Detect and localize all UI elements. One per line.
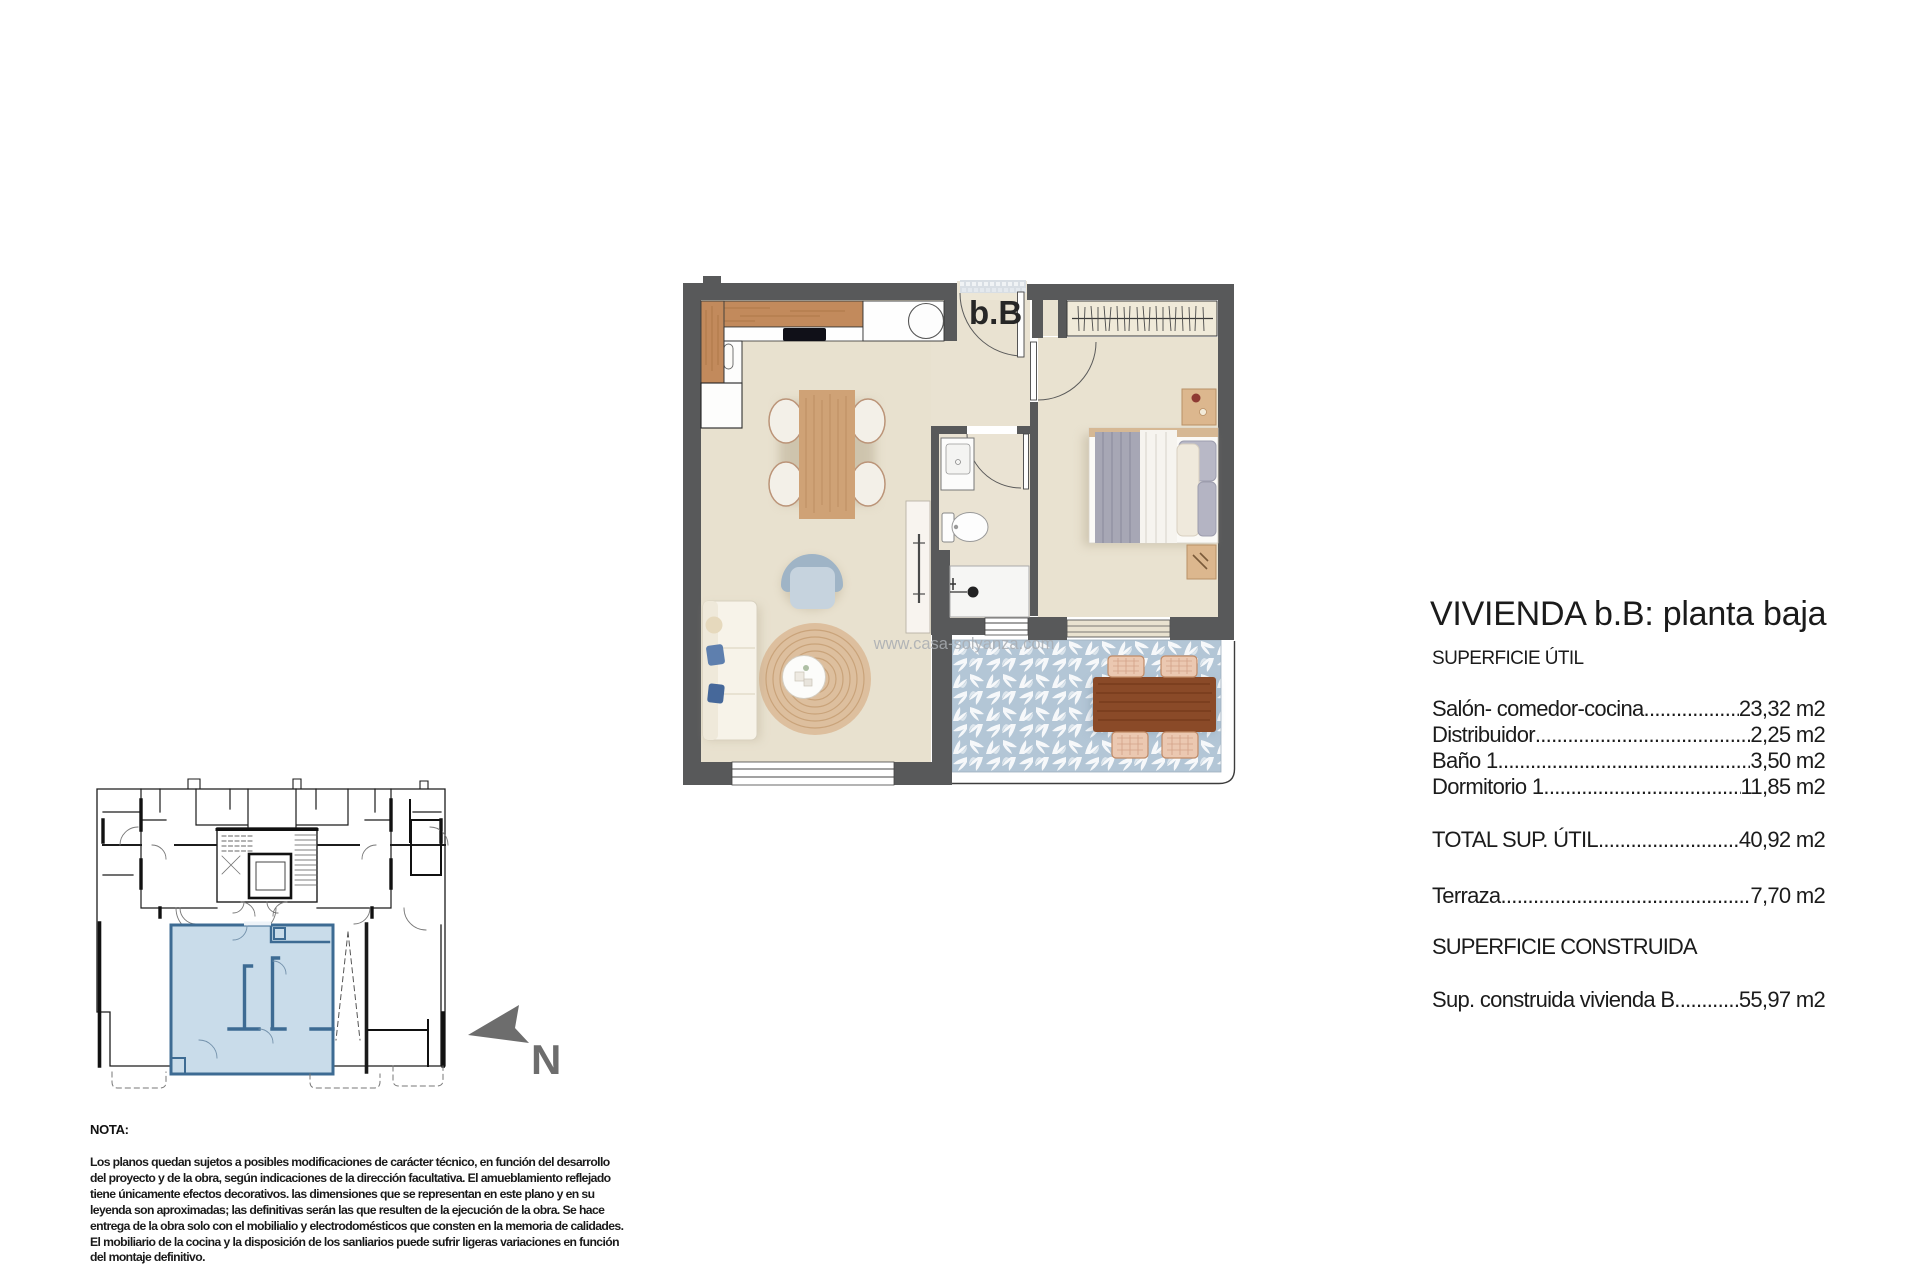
svg-text:b.B: b.B (969, 294, 1022, 331)
svg-text:N: N (531, 1036, 561, 1083)
svg-text:www.casa-solyanza.com: www.casa-solyanza.com (873, 635, 1055, 653)
